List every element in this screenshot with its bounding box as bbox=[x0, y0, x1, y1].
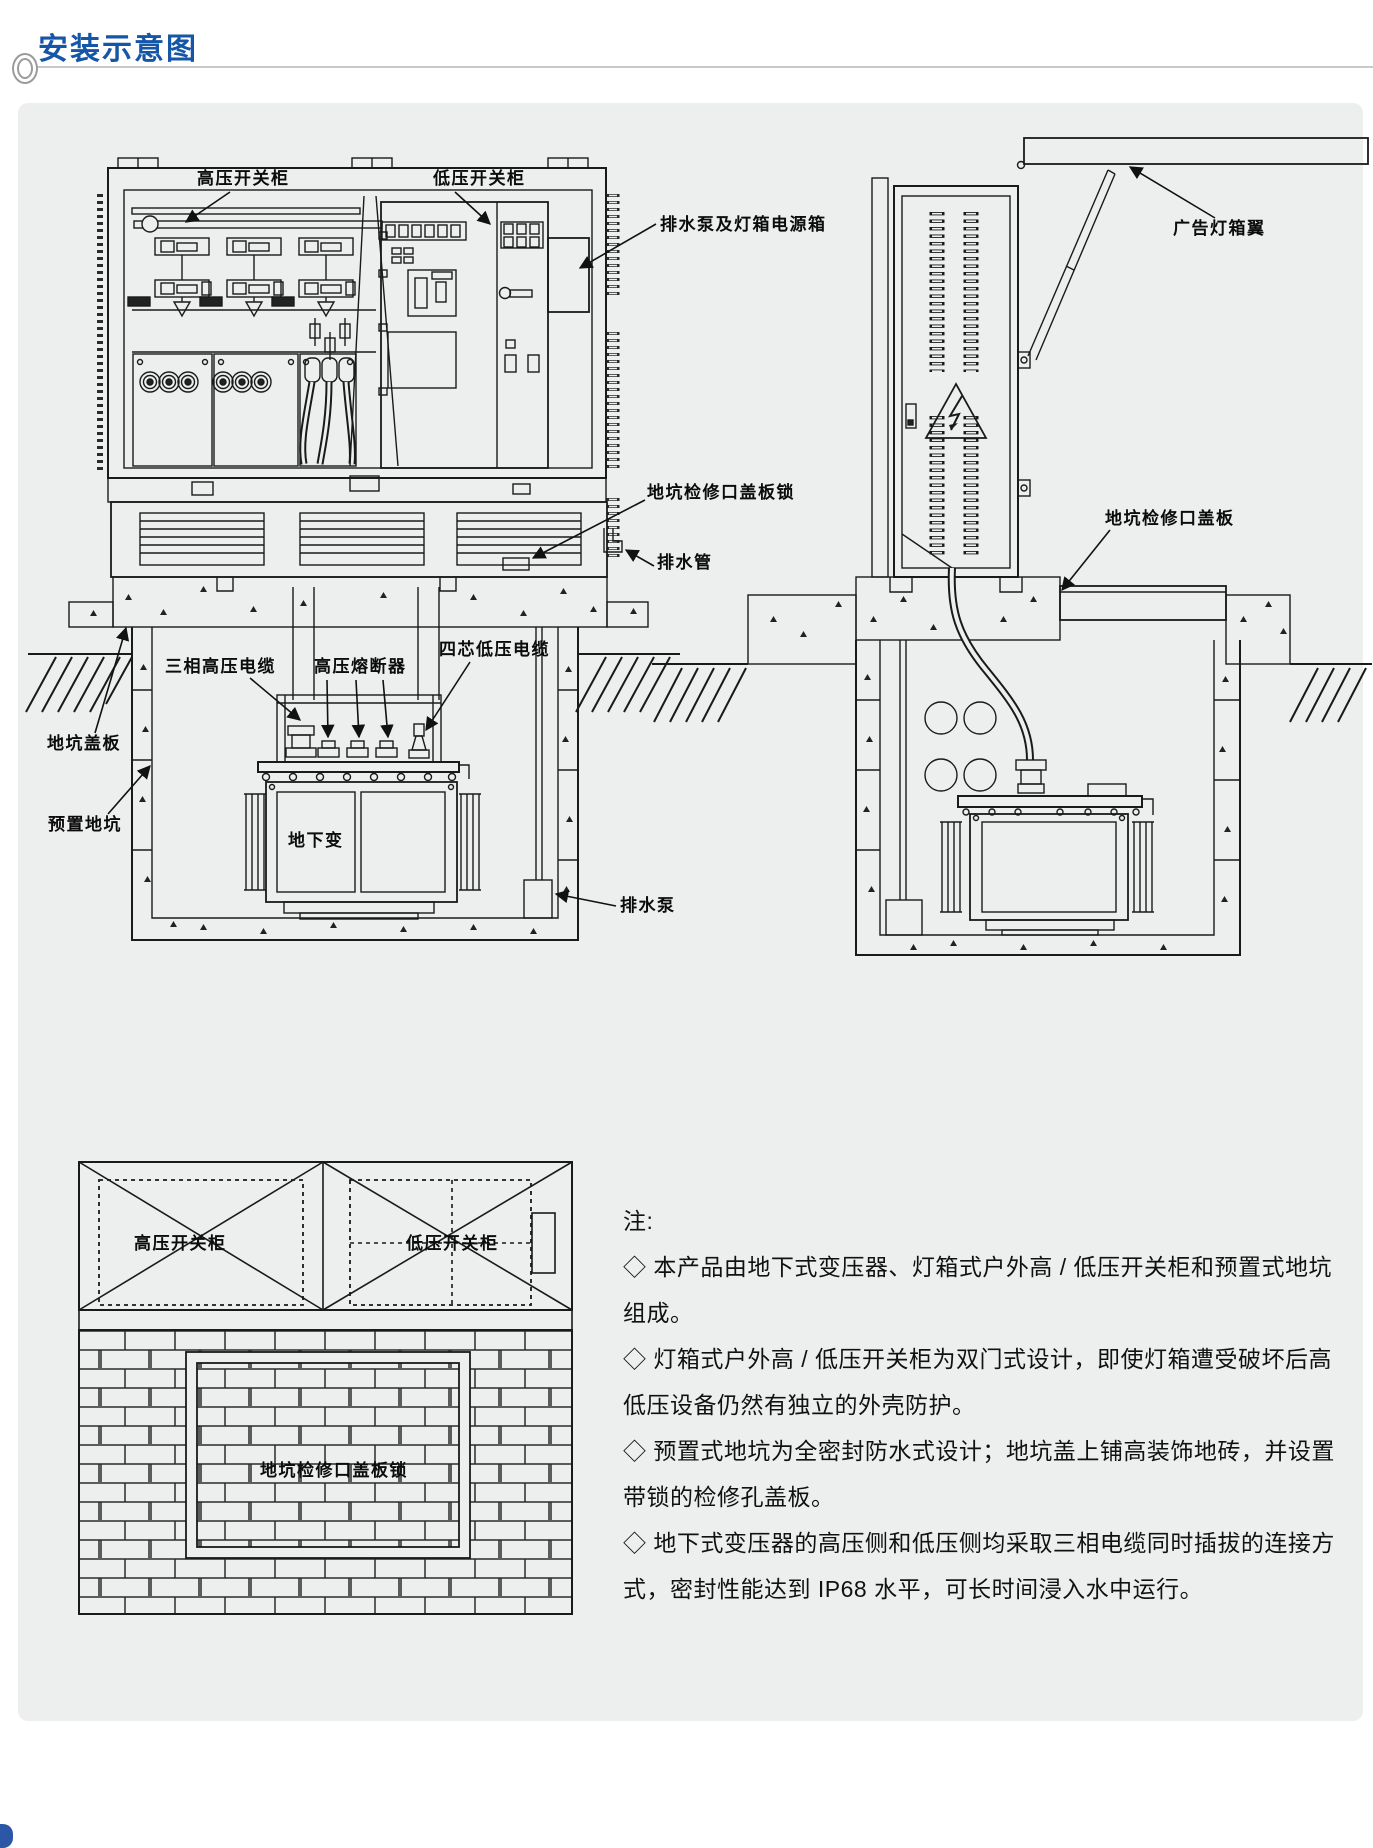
label-topview-hv-cabinet: 高压开关柜 bbox=[134, 1235, 227, 1254]
label-three-phase-hv-cable: 三相高压电缆 bbox=[165, 658, 276, 677]
side-transformer bbox=[940, 784, 1154, 935]
label-ad-lightbox-wing: 广告灯箱翼 bbox=[1173, 220, 1266, 239]
cover-lock-detail bbox=[503, 558, 529, 570]
fuse-caps bbox=[318, 741, 397, 757]
pit-cover-plate bbox=[1060, 586, 1226, 620]
catalog-page: 安装示意图 bbox=[0, 0, 1373, 1848]
label-topview-cover-lock: 地坑检修口盖板锁 bbox=[260, 1462, 408, 1481]
label-lv-cabinet: 低压开关柜 bbox=[433, 170, 526, 189]
label-pit-access-cover: 地坑检修口盖板 bbox=[1105, 510, 1235, 529]
hinge-brackets bbox=[1018, 352, 1030, 496]
cable-connectors bbox=[140, 372, 271, 392]
cabinet-base bbox=[108, 476, 622, 577]
cabinet-side bbox=[894, 186, 1018, 577]
note-line: 带锁的检修孔盖板。 bbox=[623, 1474, 1323, 1520]
label-drain-pipe: 排水管 bbox=[657, 554, 713, 573]
side-louvers bbox=[937, 212, 971, 556]
hv-doors bbox=[133, 354, 356, 466]
front-view bbox=[26, 158, 680, 940]
label-hv-fuse: 高压熔断器 bbox=[314, 658, 407, 677]
ad-wing bbox=[1018, 138, 1369, 360]
side-pit bbox=[856, 568, 1240, 955]
louver-grille bbox=[140, 513, 581, 565]
label-pump-lightbox-power-box: 排水泵及灯箱电源箱 bbox=[660, 216, 827, 235]
label-pit-cover: 地坑盖板 bbox=[47, 735, 121, 754]
label-topview-lv-cabinet: 低压开关柜 bbox=[406, 1235, 499, 1254]
back-panel bbox=[872, 178, 888, 577]
foundation bbox=[69, 577, 648, 627]
label-drain-pump: 排水泵 bbox=[620, 897, 676, 916]
note-line: ◇ 灯箱式户外高 / 低压开关柜为双门式设计，即使灯箱遭受破坏后高 bbox=[623, 1336, 1323, 1382]
hv-compartment bbox=[128, 208, 382, 466]
note-line: ◇ 本产品由地下式变压器、灯箱式户外高 / 低压开关柜和预置式地坑 bbox=[623, 1244, 1323, 1290]
fins-right bbox=[459, 794, 481, 890]
side-view bbox=[652, 138, 1372, 955]
note-line: 组成。 bbox=[623, 1290, 1323, 1336]
label-hv-cabinet: 高压开关柜 bbox=[197, 170, 290, 189]
lightning-warning-icon bbox=[926, 384, 986, 438]
label-four-core-lv-cable: 四芯低压电缆 bbox=[439, 641, 550, 660]
underground-transformer-unit bbox=[244, 695, 481, 919]
fins-left bbox=[244, 794, 266, 890]
side-ground-left bbox=[652, 664, 748, 722]
plug-in-cables bbox=[303, 358, 354, 464]
lv-compartment bbox=[379, 202, 548, 468]
drain-pump-unit bbox=[524, 627, 552, 918]
lifting-lugs bbox=[118, 158, 588, 168]
side-drain-pump bbox=[886, 640, 922, 935]
label-underground-transformer: 地下变 bbox=[288, 832, 344, 851]
notes-block: 注: ◇ 本产品由地下式变压器、灯箱式户外高 / 低压开关柜和预置式地坑 组成。… bbox=[623, 1198, 1323, 1612]
hv-terminal bbox=[286, 726, 316, 757]
pit-vent-holes bbox=[925, 702, 996, 791]
note-line: ◇ 地下式变压器的高压侧和低压侧均采取三相电缆同时插拔的连接方 bbox=[623, 1520, 1323, 1566]
note-line: 式，密封性能达到 IP68 水平，可长时间浸入水中运行。 bbox=[623, 1566, 1323, 1612]
side-foundation bbox=[748, 577, 1290, 664]
note-line: 低压设备仍然有独立的外壳防护。 bbox=[623, 1382, 1323, 1428]
label-preset-pit: 预置地坑 bbox=[48, 816, 122, 835]
top-view bbox=[79, 1162, 572, 1614]
note-line: ◇ 预置式地坑为全密封防水式设计；地坑盖上铺高装饰地砖，并设置 bbox=[623, 1428, 1323, 1474]
side-ground-right bbox=[1290, 664, 1372, 722]
notes-heading: 注: bbox=[623, 1198, 1323, 1244]
power-box bbox=[548, 238, 589, 312]
top-view-latch bbox=[532, 1213, 555, 1273]
plate-bolts bbox=[263, 774, 456, 781]
cable-risers bbox=[293, 587, 439, 700]
label-pit-access-cover-lock: 地坑检修口盖板锁 bbox=[647, 484, 795, 503]
